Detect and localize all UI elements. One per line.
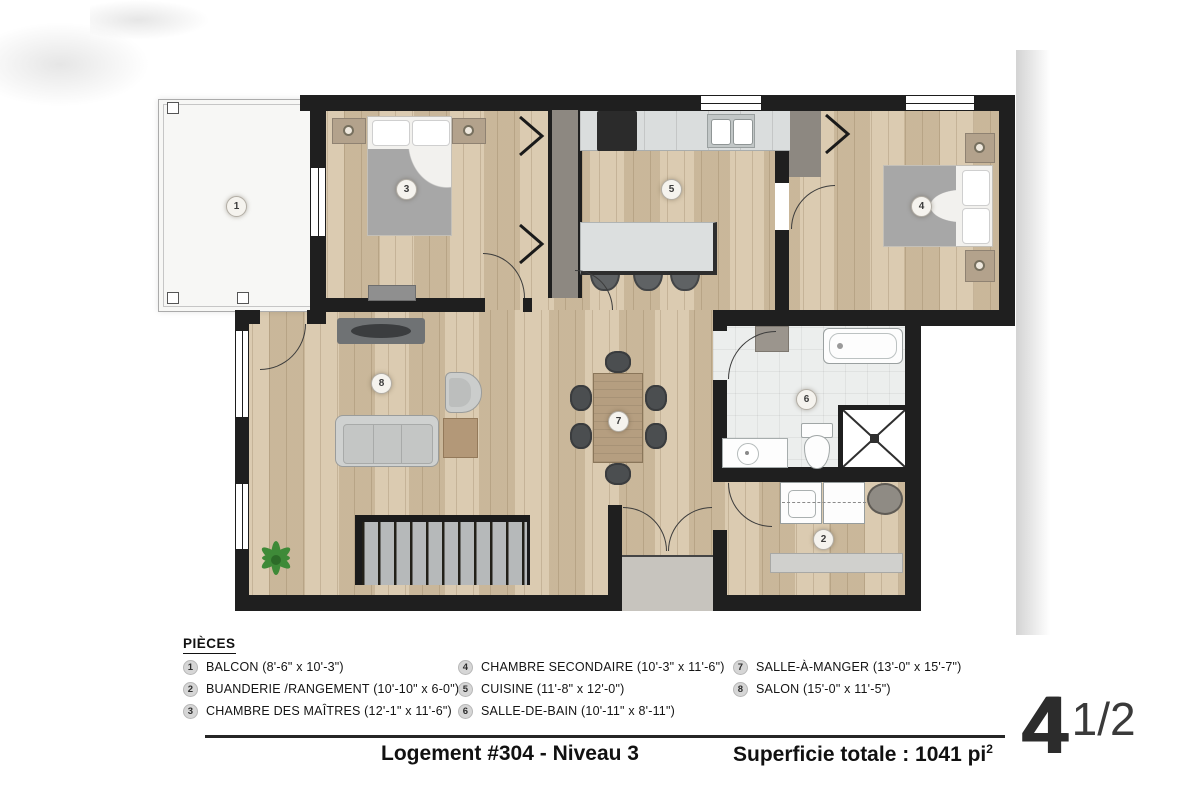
unit-size-badge: 4 1/2: [1022, 688, 1136, 763]
wall-master-bottom-stub: [523, 298, 532, 312]
legend-badge: 8: [733, 682, 748, 697]
lamp-icon: [463, 125, 474, 136]
legend-item: 7SALLE-À-MANGER (13'-0" x 15'-7"): [733, 656, 962, 678]
floor-plan: 1 3 5 4 8 7 6 2: [150, 85, 1030, 617]
closet-bifold-icon: [518, 115, 546, 157]
lamp-icon: [343, 125, 354, 136]
wall-bath-left-c: [713, 530, 727, 595]
wall-bottom: [235, 595, 921, 611]
legend-title: PIÈCES: [183, 636, 236, 654]
kitchen-sink: [707, 114, 755, 148]
wall-under-balcony-a: [235, 310, 260, 324]
legend-label: SALLE-À-MANGER (13'-0" x 15'-7"): [756, 660, 962, 674]
sofa-cushions: [343, 424, 433, 464]
legend-item: 5CUISINE (11'-8" x 12'-0"): [458, 678, 725, 700]
legend-badge: 5: [458, 682, 473, 697]
kitchen-window: [700, 95, 762, 111]
room-badge-salon: 8: [371, 373, 392, 394]
dining-chair: [570, 385, 592, 411]
unit-size-main: 4: [1022, 688, 1068, 763]
bathtub-drain: [837, 343, 843, 349]
total-area-label: Superficie totale : 1041 pi: [733, 743, 986, 766]
living-window-1: [235, 330, 249, 418]
legend-label: SALLE-DE-BAIN (10'-11" x 8'-11"): [481, 704, 675, 718]
toilet: [800, 423, 834, 469]
area-exponent: 2: [986, 742, 993, 756]
room-badge-cuisine: 5: [661, 179, 682, 200]
legend-item: 3CHAMBRE DES MAÎTRES (12'-1" x 11'-6"): [183, 700, 459, 722]
bathtub: [823, 328, 903, 364]
wall-kitchen-bed2-b: [775, 230, 789, 310]
room-badge-salle-a-manger: 7: [608, 411, 629, 432]
washer: [780, 482, 822, 524]
wall-under-balcony-b: [307, 310, 326, 324]
wall-vestibule-stub: [608, 505, 622, 595]
room-badge-salle-de-bain: 6: [796, 389, 817, 410]
stove: [597, 111, 637, 151]
shower: [843, 410, 905, 467]
dining-chair: [605, 351, 631, 373]
scanned-floorplan-sheet: { "legend": { "title": "PIÈCES" }, "room…: [0, 0, 1200, 800]
total-area: Superficie totale : 1041 pi2: [733, 742, 993, 767]
plant-icon: [253, 535, 299, 581]
wall-right-upper: [999, 95, 1015, 326]
master-dresser: [368, 285, 416, 301]
wall-bath-left-a: [713, 325, 727, 331]
storage-shelf: [770, 553, 903, 573]
balcony-patio-door: [310, 167, 326, 237]
entry-landing: [622, 555, 713, 611]
bed-pillow: [412, 120, 450, 146]
armchair-seat: [449, 378, 471, 407]
sink-basin: [711, 119, 731, 145]
sink-basin: [733, 119, 753, 145]
legend-label: BUANDERIE /RANGEMENT (10'-10" x 6-0"): [206, 682, 459, 696]
laundry-hamper: [867, 483, 903, 515]
legend-badge: 3: [183, 704, 198, 719]
bed2-hall-opening: [775, 183, 789, 230]
legend-label: SALON (15'-0" x 11'-5"): [756, 682, 891, 696]
legend-label: BALCON (8'-6" x 10'-3"): [206, 660, 344, 674]
laundry-dash-line: [782, 502, 866, 503]
dining-chair: [605, 463, 631, 485]
secondary-bed: [883, 165, 993, 247]
unit-title: Logement #304 - Niveau 3: [295, 742, 725, 766]
bedroom2-window: [905, 95, 975, 111]
tv-console: [337, 318, 425, 344]
living-window-2: [235, 483, 249, 550]
legend-column-2: 4CHAMBRE SECONDAIRE (10'-3" x 11'-6") 5C…: [458, 656, 725, 722]
scan-smudge-top: [90, 0, 210, 40]
legend-column-3: 7SALLE-À-MANGER (13'-0" x 15'-7") 8SALON…: [733, 656, 962, 700]
legend-label: CHAMBRE DES MAÎTRES (12'-1" x 11'-6"): [206, 704, 452, 718]
legend-badge: 7: [733, 660, 748, 675]
unit-size-fraction: 1/2: [1072, 696, 1136, 742]
kitchen-island: [580, 222, 717, 275]
balcony-post: [167, 292, 179, 304]
side-table: [443, 418, 478, 458]
legend-column-1: 1BALCON (8'-6" x 10'-3") 2BUANDERIE /RAN…: [183, 656, 459, 722]
shower-x-icon: [843, 410, 905, 467]
legend-item: 2BUANDERIE /RANGEMENT (10'-10" x 6-0"): [183, 678, 459, 700]
legend-item: 6SALLE-DE-BAIN (10'-11" x 8'-11"): [458, 700, 725, 722]
dryer: [823, 482, 865, 524]
room-badge-chambre-secondaire: 4: [911, 196, 932, 217]
legend-label: CUISINE (11'-8" x 12'-0"): [481, 682, 624, 696]
legend-badge: 6: [458, 704, 473, 719]
sofa: [335, 415, 439, 467]
dining-chair: [645, 423, 667, 449]
footer-divider: [205, 735, 1005, 738]
washer-door: [788, 490, 816, 518]
legend-label: CHAMBRE SECONDAIRE (10'-3" x 11'-6"): [481, 660, 725, 674]
toilet-bowl: [804, 435, 830, 469]
bed2-closet: [789, 111, 821, 177]
balcony-post: [237, 292, 249, 304]
legend-badge: 4: [458, 660, 473, 675]
master-bed: [367, 116, 452, 236]
bed-pillow: [372, 120, 410, 146]
legend-item: 4CHAMBRE SECONDAIRE (10'-3" x 11'-6"): [458, 656, 725, 678]
wall-bath-bottom: [713, 467, 921, 482]
closet-bifold-icon: [824, 113, 852, 155]
wall-right-lower: [905, 310, 921, 611]
legend-item: 8SALON (15'-0" x 11'-5"): [733, 678, 962, 700]
room-badge-chambre-maitres: 3: [396, 179, 417, 200]
lamp-icon: [974, 260, 985, 271]
closet-bifold-icon: [518, 223, 546, 265]
balcony-post: [167, 102, 179, 114]
room-badge-buanderie: 2: [813, 529, 834, 550]
staircase: [355, 515, 530, 585]
tv-screen: [351, 324, 411, 338]
vanity-drain: [745, 451, 749, 455]
vanity: [722, 438, 788, 468]
wall-step-right: [713, 310, 1015, 326]
bed-pillow: [962, 208, 990, 244]
bed-pillow: [962, 170, 990, 206]
dining-chair: [645, 385, 667, 411]
dining-chair: [570, 423, 592, 449]
room-badge-balcon: 1: [226, 196, 247, 217]
legend-badge: 2: [183, 682, 198, 697]
legend-badge: 1: [183, 660, 198, 675]
legend-item: 1BALCON (8'-6" x 10'-3"): [183, 656, 459, 678]
lamp-icon: [974, 142, 985, 153]
